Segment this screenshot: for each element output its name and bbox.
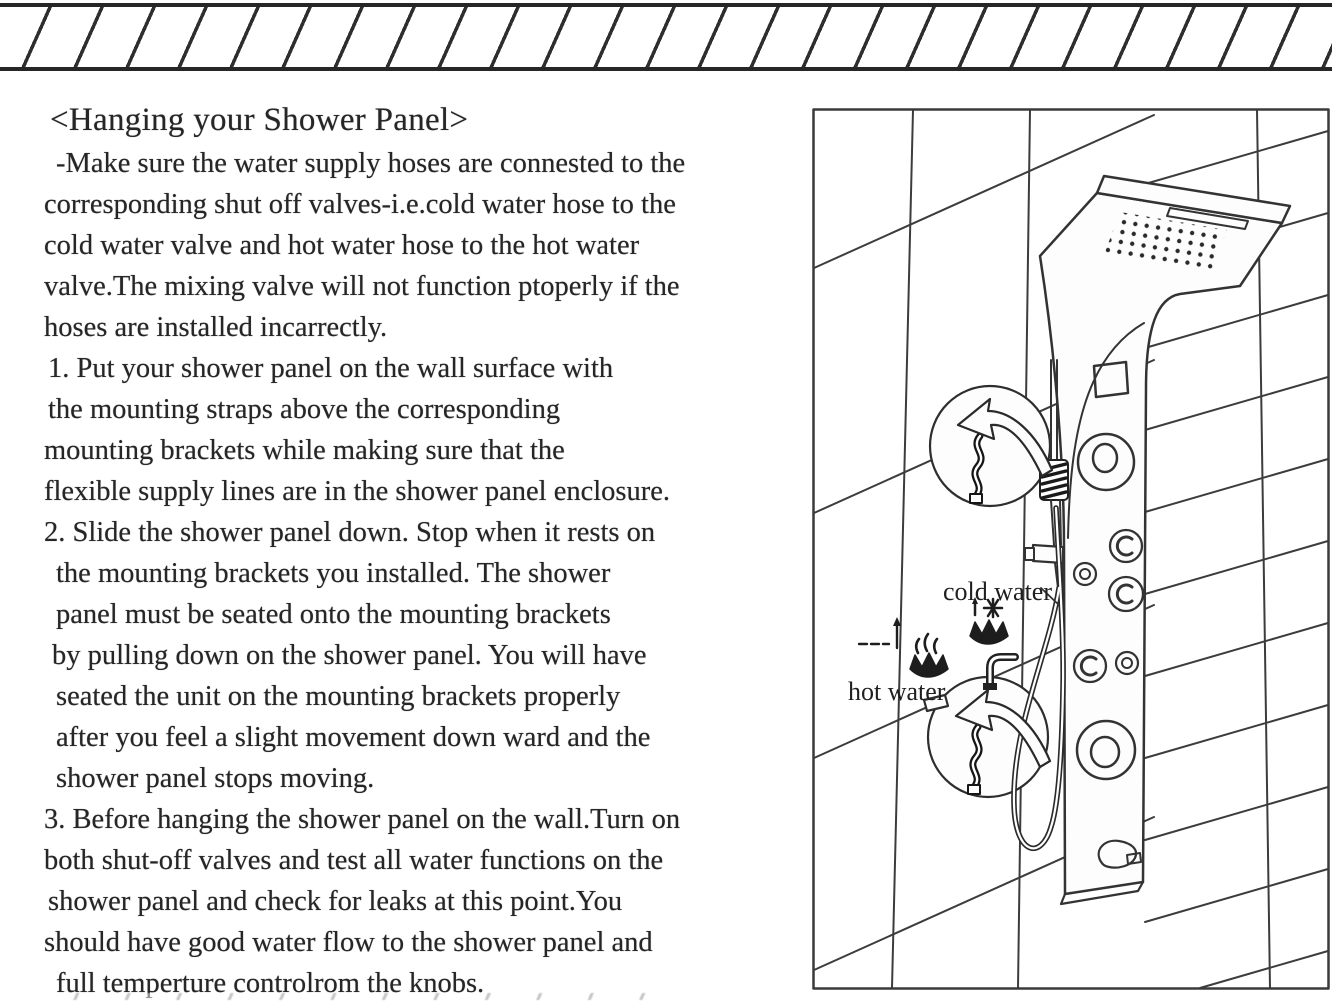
cold-water-label: cold water [943, 577, 1052, 606]
instruction-line: seated the unit on the mounting brackets… [56, 676, 800, 717]
instruction-line: 1. Put your shower panel on the wall sur… [48, 348, 800, 389]
panel-front-face [1040, 193, 1282, 894]
page-title: <Hanging your Shower Panel> [50, 102, 800, 139]
hatched-divider-top [0, 3, 1332, 71]
instruction-line: the mounting straps above the correspond… [48, 389, 800, 430]
instruction-line: by pulling down on the shower panel. You… [52, 635, 800, 676]
instruction-line: -Make sure the water supply hoses are co… [56, 143, 800, 184]
instruction-line: panel must be seated onto the mounting b… [56, 594, 800, 635]
shower-panel-diagram: cold water hot water [812, 108, 1330, 990]
instruction-line: should have good water flow to the showe… [44, 922, 800, 963]
instruction-line: shower panel stops moving. [56, 758, 800, 799]
instruction-line: valve.The mixing valve will not function… [44, 266, 800, 307]
instruction-line: hoses are installed incarrectly. [44, 307, 800, 348]
instruction-line: both shut-off valves and test all water … [44, 840, 800, 881]
instruction-line: mounting brackets while making sure that… [44, 430, 800, 471]
hatched-divider-bottom-partial [28, 993, 668, 1000]
instruction-line: the mounting brackets you installed. The… [56, 553, 800, 594]
hot-water-icon [859, 617, 948, 677]
instruction-line: cold water valve and hot water hose to t… [44, 225, 800, 266]
hot-water-label: hot water [848, 677, 946, 706]
instruction-line: shower panel and check for leaks at this… [48, 881, 800, 922]
instruction-line: 2. Slide the shower panel down. Stop whe… [44, 512, 800, 553]
instruction-line: corresponding shut off valves-i.e.cold w… [44, 184, 800, 225]
shower-panel-body [1040, 176, 1290, 904]
instruction-line: after you feel a slight movement down wa… [56, 717, 800, 758]
instructions-block: <Hanging your Shower Panel> -Make sure t… [44, 102, 800, 1004]
instruction-line: flexible supply lines are in the shower … [44, 471, 800, 512]
shower-panel-illustration: cold water hot water [812, 108, 1330, 990]
instruction-line: 3. Before hanging the shower panel on th… [44, 799, 800, 840]
